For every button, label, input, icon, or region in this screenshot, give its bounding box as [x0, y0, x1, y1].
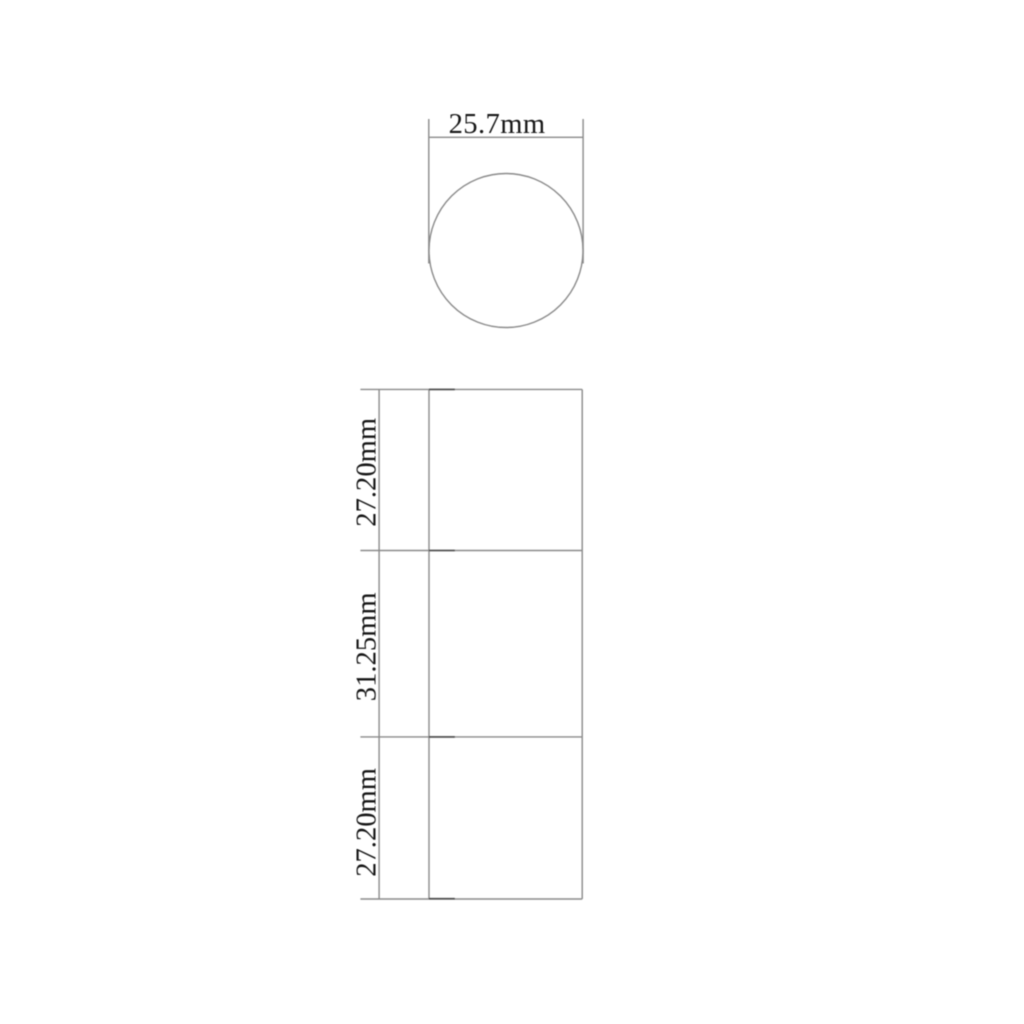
svg-text:27.20mm: 27.20mm [351, 768, 382, 877]
svg-text:31.25mm: 31.25mm [351, 592, 382, 701]
svg-text:25.7mm: 25.7mm [449, 109, 546, 140]
svg-text:27.20mm: 27.20mm [351, 418, 382, 527]
